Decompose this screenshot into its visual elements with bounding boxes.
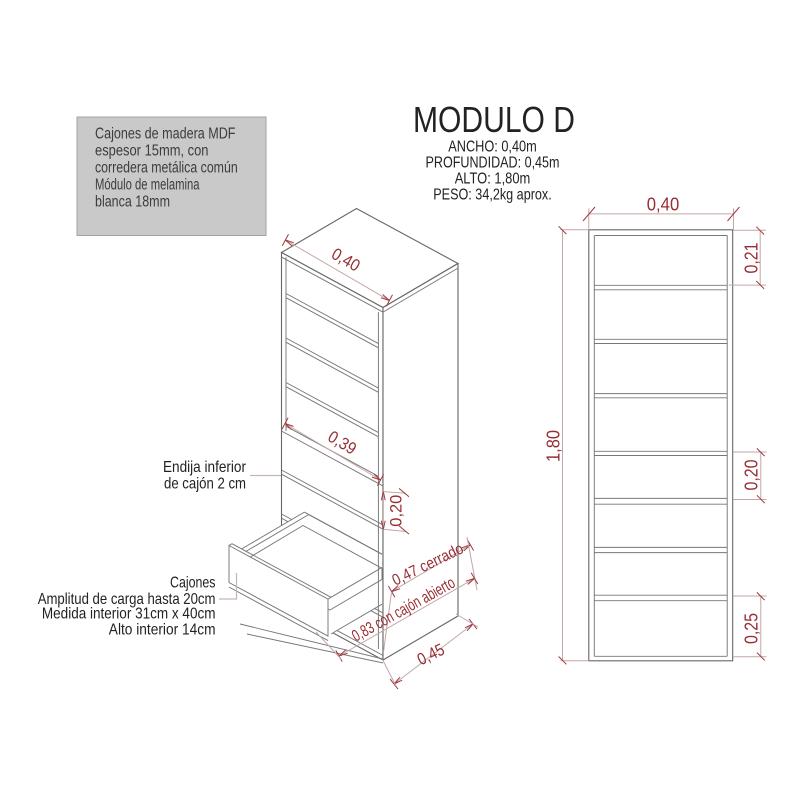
svg-text:corredera metálica común: corredera metálica común	[95, 160, 238, 177]
svg-text:PESO: 34,2kg aprox.: PESO: 34,2kg aprox.	[433, 187, 552, 204]
svg-text:Alto interior 14cm: Alto interior 14cm	[109, 622, 216, 639]
svg-text:de cajón 2 cm: de cajón 2 cm	[164, 476, 246, 493]
svg-text:blanca 18mm: blanca 18mm	[95, 194, 170, 211]
svg-text:Cajones: Cajones	[170, 575, 216, 592]
svg-text:Cajones de madera MDF: Cajones de madera MDF	[95, 126, 236, 143]
svg-text:0,40: 0,40	[647, 195, 680, 215]
svg-text:PROFUNDIDAD: 0,45m: PROFUNDIDAD: 0,45m	[426, 155, 560, 172]
svg-text:0,20: 0,20	[387, 495, 406, 527]
svg-text:espesor 15mm, con: espesor 15mm, con	[95, 143, 209, 160]
svg-text:Endija inferior: Endija inferior	[163, 459, 247, 476]
svg-text:ANCHO: 0,40m: ANCHO: 0,40m	[448, 139, 537, 156]
svg-text:0,21: 0,21	[742, 243, 762, 274]
svg-text:ALTO: 1,80m: ALTO: 1,80m	[455, 171, 531, 188]
svg-text:0,25: 0,25	[742, 613, 762, 644]
svg-text:MODULO D: MODULO D	[413, 99, 575, 140]
svg-text:1,80: 1,80	[544, 430, 564, 462]
svg-text:0,20: 0,20	[742, 460, 762, 491]
svg-text:Medida interior 31cm x 40cm: Medida interior 31cm x 40cm	[42, 606, 216, 623]
svg-text:Módulo de melamina: Módulo de melamina	[95, 177, 200, 194]
